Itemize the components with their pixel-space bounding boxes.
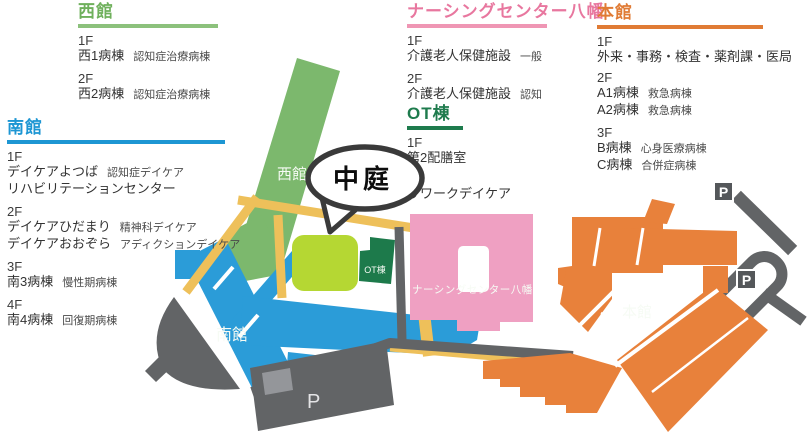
legend-row: リハビリテーションセンター	[7, 181, 240, 198]
hospital-campus-map: P P	[0, 0, 810, 440]
facility-name: 南3病棟	[7, 274, 53, 289]
facility-name: A1病棟	[597, 85, 639, 100]
facility-name: A2病棟	[597, 102, 639, 117]
legend-main-title: 本館	[597, 4, 792, 22]
legend-row: デイケアひだまり精神科デイケア	[7, 219, 240, 236]
floor-label: 3F	[7, 260, 240, 274]
floor-label: 2F	[407, 72, 605, 86]
legend-row: 南4病棟回復期病棟	[7, 312, 240, 329]
facility-note: 一般	[520, 51, 542, 63]
facility-note: アディクションデイケア	[120, 239, 240, 251]
floor-label: 1F	[7, 150, 240, 164]
floor-label: 2F	[7, 205, 240, 219]
floor-entry: 2F 介護老人保健施設認知	[407, 72, 605, 103]
legend-ot-title: OT棟	[407, 105, 511, 123]
facility-name: B病棟	[597, 140, 632, 155]
floor-entry: 1F 外来・事務・検査・薬剤課・医局	[597, 35, 792, 64]
facility-note: 心身医療病棟	[641, 143, 707, 155]
nursing-building-label: ナーシングセンター八幡	[412, 283, 533, 296]
courtyard-label: 中庭	[333, 164, 393, 194]
floor-entry: 3F B病棟心身医療病棟 C病棟合併症病棟	[597, 126, 792, 174]
floor-label: 1F	[597, 35, 792, 49]
legend-main-underline	[597, 25, 763, 29]
floor-label: 4F	[7, 298, 240, 312]
legend-south: 南館 1F デイケアよつば認知症デイケア リハビリテーションセンター 2F デイ…	[7, 119, 240, 336]
legend-west: 西館 1F 西1病棟認知症治療病棟 2F 西2病棟認知症治療病棟	[78, 3, 218, 110]
facility-note: 慢性期病棟	[62, 277, 117, 289]
parking-letter: P	[307, 391, 320, 413]
facility-name: 介護老人保健施設	[407, 48, 511, 63]
legend-row: C病棟合併症病棟	[597, 157, 792, 174]
legend-west-underline	[78, 24, 218, 28]
facility-name: 西2病棟	[78, 86, 124, 101]
facility-note: 認知症デイケア	[107, 167, 184, 179]
facility-name: リハビリテーションセンター	[7, 181, 176, 196]
facility-note: 回復期病棟	[62, 315, 117, 327]
facility-note: 認知症治療病棟	[133, 51, 210, 63]
courtyard-callout: 中庭	[288, 128, 448, 258]
floor-entry: 1F デイケアよつば認知症デイケア リハビリテーションセンター	[7, 150, 240, 198]
legend-nursing: ナーシングセンター八幡 1F 介護老人保健施設一般 2F 介護老人保健施設認知	[407, 3, 605, 110]
facility-note: 認知症治療病棟	[133, 89, 210, 101]
facility-name: デイケアひだまり	[7, 219, 111, 234]
ot-building-label: OT棟	[364, 264, 386, 275]
legend-row: A2病棟救急病棟	[597, 102, 792, 119]
facility-name: 外来・事務・検査・薬剤課・医局	[597, 49, 792, 64]
facility-note: 精神科デイケア	[120, 222, 197, 234]
floor-label: 1F	[78, 34, 218, 48]
facility-name: 介護老人保健施設	[407, 86, 511, 101]
floor-entry: 1F 西1病棟認知症治療病棟	[78, 34, 218, 65]
legend-row: デイケアよつば認知症デイケア	[7, 164, 240, 181]
facility-name: 西1病棟	[78, 48, 124, 63]
floor-label: 3F	[597, 126, 792, 140]
facility-note: 合併症病棟	[641, 160, 696, 172]
facility-note: 救急病棟	[648, 88, 692, 100]
floor-entry: 2F A1病棟救急病棟 A2病棟救急病棟	[597, 71, 792, 119]
parking-badge-south: P	[737, 270, 756, 289]
legend-row: 西2病棟認知症治療病棟	[78, 86, 218, 103]
facility-name: C病棟	[597, 157, 632, 172]
floor-entry: 3F 南3病棟慢性期病棟	[7, 260, 240, 291]
facility-name: 南4病棟	[7, 312, 53, 327]
parking-badge-north: P	[714, 182, 733, 201]
main-building-label: 本館	[622, 304, 652, 321]
facility-name: デイケアよつば	[7, 164, 98, 179]
floor-label: 1F	[407, 34, 605, 48]
legend-row: 西1病棟認知症治療病棟	[78, 48, 218, 65]
legend-row: 介護老人保健施設認知	[407, 86, 605, 103]
floor-label: 2F	[597, 71, 792, 85]
legend-row: B病棟心身医療病棟	[597, 140, 792, 157]
facility-note: 認知	[520, 89, 542, 101]
legend-row: デイケアおおぞらアディクションデイケア	[7, 236, 240, 253]
parking-badge-letter: P	[742, 272, 751, 288]
legend-row: 介護老人保健施設一般	[407, 48, 605, 65]
parking-badge-letter: P	[719, 184, 728, 200]
floor-entry: 4F 南4病棟回復期病棟	[7, 298, 240, 329]
legend-nursing-title: ナーシングセンター八幡	[407, 3, 605, 21]
floor-entry: 2F 西2病棟認知症治療病棟	[78, 72, 218, 103]
legend-west-title: 西館	[78, 3, 218, 21]
legend-south-underline	[7, 140, 225, 144]
legend-row: 外来・事務・検査・薬剤課・医局	[597, 49, 792, 64]
legend-south-title: 南館	[7, 119, 240, 137]
floor-entry: 1F 介護老人保健施設一般	[407, 34, 605, 65]
legend-main: 本館 1F 外来・事務・検査・薬剤課・医局 2F A1病棟救急病棟 A2病棟救急…	[597, 4, 792, 181]
floor-label: 2F	[78, 72, 218, 86]
facility-note: 救急病棟	[648, 105, 692, 117]
facility-name: デイケアおおぞら	[7, 236, 111, 251]
legend-row: 南3病棟慢性期病棟	[7, 274, 240, 291]
legend-row: A1病棟救急病棟	[597, 85, 792, 102]
legend-nursing-underline	[407, 24, 547, 28]
floor-entry: 2F デイケアひだまり精神科デイケア デイケアおおぞらアディクションデイケア	[7, 205, 240, 253]
